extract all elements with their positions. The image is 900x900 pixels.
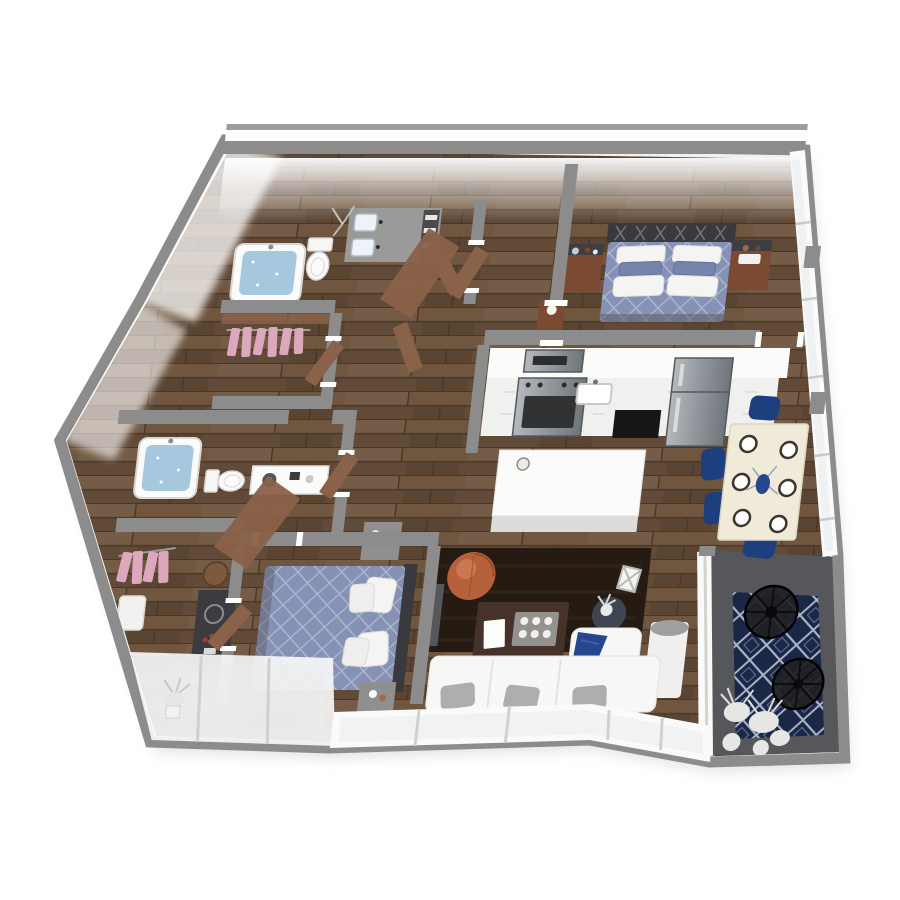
refrigerator — [665, 358, 733, 446]
window-pier-1 — [803, 246, 821, 268]
balcony-wall-cap — [699, 546, 716, 556]
north-wall-glow — [218, 158, 801, 222]
bath2-north-wall-right — [332, 410, 358, 424]
sink-1 — [354, 214, 378, 231]
toilet-left — [204, 470, 246, 492]
bathtub-top — [230, 244, 307, 302]
window-pier-2 — [809, 392, 827, 414]
nightstand-right — [727, 240, 773, 290]
closet-back-panel — [221, 314, 334, 324]
floor-plan-svg — [0, 0, 900, 900]
bed2-nightstand-bottom — [357, 682, 396, 712]
white-book — [484, 619, 505, 649]
bath1-south-wall — [220, 300, 335, 313]
headboard-metal — [606, 224, 736, 242]
bed1-foot-band — [599, 314, 724, 322]
serving-tray — [511, 612, 559, 646]
sink-2 — [351, 239, 375, 256]
bath2-south-wall — [115, 518, 243, 532]
kitchen-island — [490, 450, 645, 532]
glass-balcony-front — [119, 652, 346, 746]
bathtub-left — [133, 438, 202, 498]
sofa — [425, 656, 661, 712]
microwave-window — [532, 356, 567, 365]
scene-skew-group — [22, 124, 900, 772]
kitchen-sink — [576, 380, 613, 405]
north-wall-back-cap — [226, 124, 808, 130]
range-oven — [512, 378, 587, 436]
closet1-south-wall — [211, 396, 332, 409]
kitchen-north-wall — [484, 330, 761, 345]
bath2-north-wall — [118, 410, 290, 424]
floor-plan-stage — [0, 0, 900, 900]
coffee-table — [472, 602, 569, 658]
island-bowl — [516, 458, 529, 470]
dishwasher-opening — [612, 410, 661, 438]
